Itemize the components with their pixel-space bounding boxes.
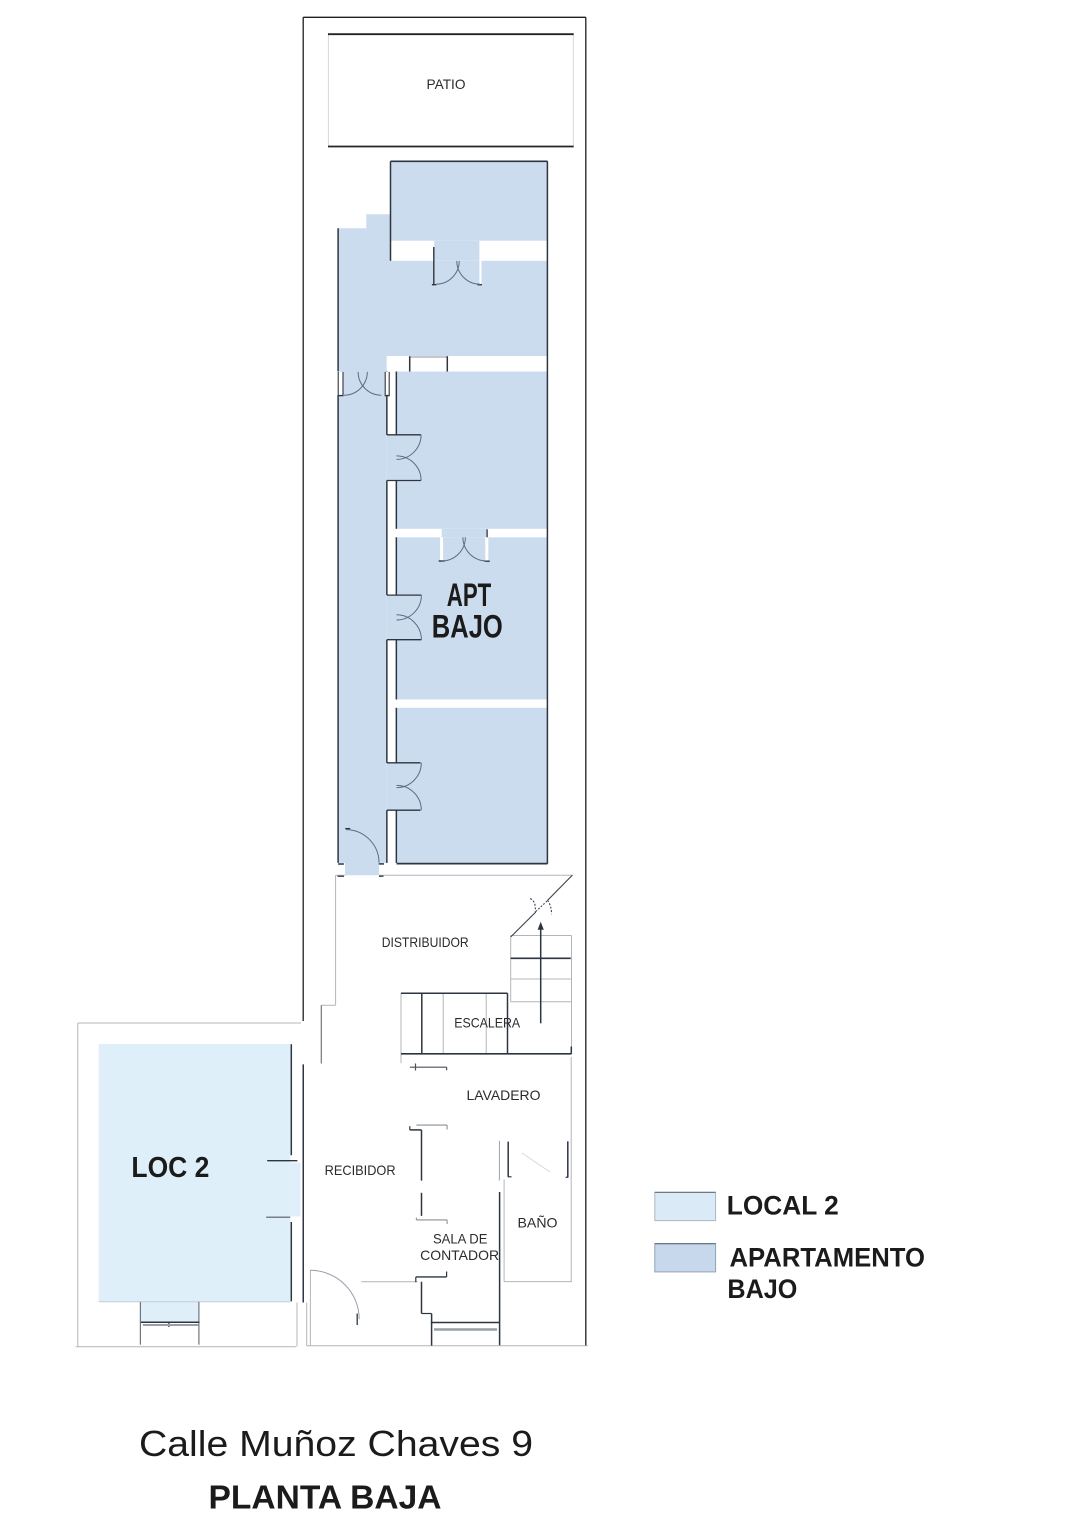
svg-text:DISTRIBUIDOR: DISTRIBUIDOR bbox=[382, 934, 469, 950]
svg-text:Calle Muñoz Chaves 9: Calle Muñoz Chaves 9 bbox=[139, 1423, 533, 1464]
svg-text:BAÑO: BAÑO bbox=[518, 1214, 558, 1230]
svg-text:RECIBIDOR: RECIBIDOR bbox=[325, 1162, 396, 1178]
svg-text:LAVADERO: LAVADERO bbox=[467, 1087, 541, 1103]
svg-text:LOCAL 2: LOCAL 2 bbox=[727, 1190, 839, 1220]
svg-text:PATIO: PATIO bbox=[427, 76, 466, 92]
svg-text:BAJO: BAJO bbox=[432, 609, 503, 645]
svg-text:CONTADOR: CONTADOR bbox=[420, 1247, 499, 1263]
svg-text:SALA DE: SALA DE bbox=[433, 1231, 488, 1247]
svg-text:APT: APT bbox=[447, 577, 492, 613]
svg-text:PLANTA BAJA: PLANTA BAJA bbox=[209, 1479, 442, 1516]
svg-text:LOC 2: LOC 2 bbox=[131, 1152, 209, 1184]
svg-text:BAJO: BAJO bbox=[727, 1274, 797, 1304]
svg-text:APARTAMENTO: APARTAMENTO bbox=[730, 1243, 926, 1273]
svg-text:ESCALERA: ESCALERA bbox=[454, 1015, 521, 1031]
